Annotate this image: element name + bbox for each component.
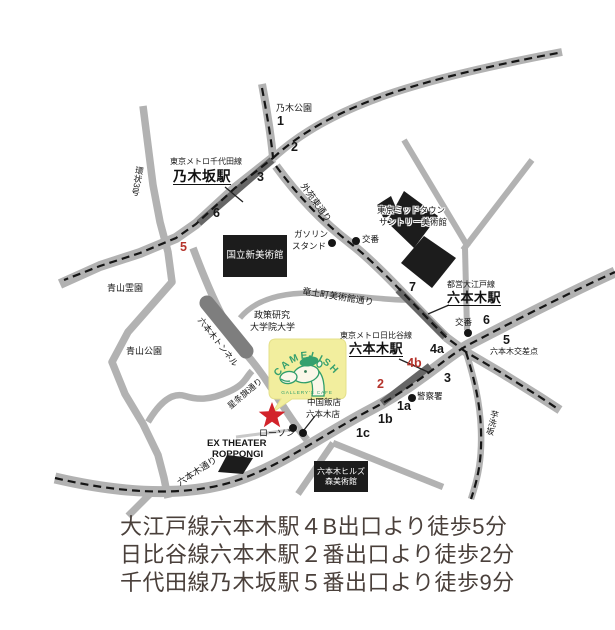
road-midtown-east [463, 160, 532, 250]
oedo-pointer [428, 305, 449, 314]
aoyama-cemetery-label: 青山霊園 [107, 284, 143, 293]
logo-subtitle-text: GALLERY'S CAFE [281, 390, 332, 396]
exit-7: 7 [409, 281, 416, 294]
hibiya-line-label: 東京メトロ日比谷線 [340, 332, 412, 340]
exit-6: 6 [213, 207, 220, 220]
exit-2-red: 2 [377, 378, 384, 391]
national-art-center-label: 国立新美術館 [226, 250, 283, 262]
exit-4b-red: 4b [407, 357, 422, 370]
koban-crossing-label: 交番 [455, 318, 472, 327]
exit-3b: 3 [444, 372, 451, 385]
midtown-label-1: 東京ミッドタウン [377, 206, 445, 215]
koban-crossing-dot [464, 329, 472, 337]
gas-station-label-2: スタンド [292, 242, 324, 251]
hills-label-2: 森美術館 [325, 477, 357, 487]
nogizaka-station-label: 乃木坂駅 [173, 169, 231, 185]
grips-label-1: 政策研究 [254, 311, 290, 320]
exit-1b: 1b [378, 413, 393, 426]
nogi-park-dash [273, 53, 558, 158]
exit-1: 1 [277, 115, 284, 128]
roppongi-hibiya-station-label: 六本木駅 [349, 342, 403, 357]
road-kanjo3 [112, 106, 172, 498]
exit-3: 3 [257, 171, 264, 184]
camel-eye [304, 370, 307, 373]
chugoku-dot [299, 429, 307, 437]
chiyoda-line-label: 東京メトロ千代田線 [170, 158, 242, 166]
directions-line-oedo: 大江戸線六本木駅４B出口より徒歩5分 [120, 513, 515, 541]
access-directions: 大江戸線六本木駅４B出口より徒歩5分 日比谷線六本木駅２番出口より徒歩2分 千代… [120, 513, 515, 597]
chugoku-label-2: 六本木店 [306, 410, 340, 419]
exit-2: 2 [291, 141, 298, 154]
road-nogi-park [273, 52, 562, 158]
exit-5-red: 5 [180, 241, 187, 254]
lawson-label: ローソン [259, 429, 295, 438]
hills-label-1: 六本木ヒルズ [317, 467, 365, 477]
koban-north-dot [352, 237, 360, 245]
exit-1c: 1c [356, 427, 370, 440]
exit-1a: 1a [397, 400, 411, 413]
gas-station-dot [328, 239, 336, 247]
roppongi-hills-box: 六本木ヒルズ 森美術館 [314, 461, 368, 492]
directions-line-chiyoda: 千代田線乃木坂駅５番出口より徒歩9分 [120, 569, 515, 597]
roppongi-oedo-station-label: 六本木駅 [447, 291, 501, 306]
exit-5b: 5 [503, 334, 510, 347]
nogi-park-label: 乃木公園 [276, 104, 312, 113]
national-art-center-box: 国立新美術館 [223, 235, 287, 277]
gas-station-label-1: ガソリン [294, 230, 324, 239]
access-map: CAMELISH GALLERY'S CAFE 乃木公園 1 2 東京メトロ千代… [0, 0, 615, 630]
road-imoarai [466, 352, 481, 499]
directions-line-hibiya: 日比谷線六本木駅２番出口より徒歩2分 [120, 541, 515, 569]
grips-label-2: 大学院大学 [250, 323, 295, 332]
camel-beret-stem [309, 355, 312, 358]
roppongi-crossing-label: 六本木交差点 [490, 348, 538, 356]
exit-6b: 6 [483, 314, 490, 327]
ex-theater-label-2: ROPPONGI [212, 450, 263, 460]
chugoku-label-1: 中国飯店 [307, 398, 341, 407]
exit-4a: 4a [430, 343, 444, 356]
koban-north-label: 交番 [362, 235, 379, 244]
police-label: 警察署 [417, 392, 443, 401]
aoyama-park-label: 青山公園 [126, 347, 162, 356]
oedo-line-label: 都営大江戸線 [447, 281, 495, 289]
ex-theater-label-1: EX THEATER [207, 439, 266, 449]
oedo-station-stripe [398, 290, 445, 337]
midtown-label-2: サントリー美術館 [379, 218, 447, 227]
